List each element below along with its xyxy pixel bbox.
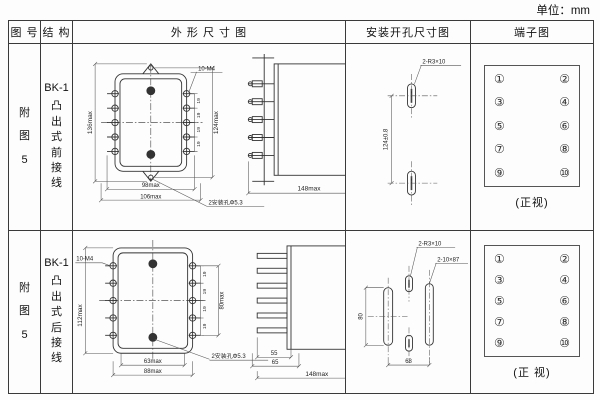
terminal-number: ⑩: [559, 167, 570, 179]
mounting-hole-spec-label: 2安装孔Φ5.3: [211, 352, 246, 360]
figure-number: 附图5: [17, 277, 32, 346]
unit-label: 单位：mm: [536, 2, 590, 18]
pitch-label: 19: [196, 127, 202, 133]
outline-drawing-front-wiring: 136max 124max 10-M4 19 19 19 19 98max 10…: [73, 44, 345, 230]
terminal-number: ④: [559, 96, 570, 108]
terminal-number: ②: [559, 253, 570, 265]
relay-front-view: [99, 239, 206, 360]
terminal-row: ①②: [494, 253, 570, 265]
dim-blade-55: 55: [271, 351, 278, 357]
structure-label: 凸出式前接线: [49, 99, 64, 191]
dim-height-overall: 112max: [77, 303, 84, 326]
outline-cell-row1: 136max 124max 10-M4 19 19 19 19 98max 10…: [73, 44, 346, 231]
mounting-cell-row1: 124±0.8 2-R3×10: [346, 44, 471, 231]
structure-cell-row2: BK-1 凸出式后接线: [41, 231, 73, 393]
slot-spec-label: 2-R3×10: [422, 60, 446, 66]
spec-table: 图 号 结 构 外 形 尺 寸 图 安装开孔尺寸图 端子图 附图5 BK-1 凸…: [8, 20, 594, 394]
datasheet-page: 单位：mm 图 号 结 构 外 形 尺 寸 图 安装开孔尺寸图 端子图 附图5 …: [0, 0, 600, 400]
terminal-row: ③④: [494, 274, 570, 286]
terminal-number: ③: [494, 96, 505, 108]
figure-no-cell-row1: 附图5: [9, 44, 41, 231]
terminal-number: ⑥: [559, 295, 570, 307]
terminal-box: ①② ③④ ⑤⑥ ⑦⑧ ⑨⑩: [484, 65, 580, 187]
outline-cell-row2: 10-M4 112max 19 19 19 19 80max 63max 88m…: [73, 231, 346, 393]
terminal-number: ⑧: [559, 143, 570, 155]
header-structure-label: 结 构: [42, 24, 70, 40]
mounting-hole-spec-label: 2安装孔Φ5.3: [209, 199, 244, 207]
terminal-row: ⑨⑩: [494, 337, 570, 349]
dim-width-overall: 88max: [144, 369, 162, 375]
terminal-box: ①② ③④ ⑤⑥ ⑦⑧ ⑨⑩: [484, 245, 580, 357]
terminal-number: ④: [559, 274, 570, 286]
terminal-row: ⑨⑩: [494, 167, 570, 179]
slot-spec-label: 2-R3×10: [418, 241, 442, 247]
terminal-row: ⑤⑥: [494, 295, 570, 307]
model-label: BK-1: [44, 82, 68, 94]
figure-number: 附图5: [17, 102, 32, 171]
dim-depth: 148max: [297, 186, 321, 193]
relay-side-view: [248, 54, 345, 185]
dim-slot-span: 80: [358, 312, 364, 319]
terminal-number: ⑦: [494, 143, 505, 155]
pitch-label: 19: [202, 306, 208, 312]
structure-label: 凸出式后接线: [49, 274, 64, 366]
header-figure-no-label: 图 号: [10, 24, 38, 40]
terminal-cell-row1: ①② ③④ ⑤⑥ ⑦⑧ ⑨⑩ (正视): [471, 44, 593, 231]
dimension-lines: [388, 65, 461, 205]
dim-height-holes: 124max: [213, 110, 220, 134]
terminal-number: ⑤: [494, 295, 505, 307]
dim-hole-spacing: 124±0.8: [384, 128, 390, 150]
dimension-lines: [364, 247, 468, 367]
terminal-row: ③④: [494, 96, 570, 108]
terminal-number: ⑨: [494, 167, 505, 179]
mounting-holes-drawing: 124±0.8 2-R3×10: [346, 44, 470, 230]
header-outline: 外 形 尺 寸 图: [73, 21, 346, 44]
terminal-row: ①②: [494, 73, 570, 85]
terminal-row: ⑤⑥: [494, 120, 570, 132]
pitch-label: 19: [202, 323, 208, 329]
terminal-number: ⑩: [559, 337, 570, 349]
structure-cell-row1: BK-1 凸出式前接线: [41, 44, 73, 231]
relay-front-view: [101, 64, 202, 181]
pitch-label: 19: [196, 112, 202, 118]
dim-terminal-span: 80max: [219, 291, 225, 309]
header-outline-label: 外 形 尺 寸 图: [171, 24, 247, 40]
terminal-number: ①: [494, 73, 505, 85]
mounting-slots: [384, 275, 434, 350]
mounting-holes-drawing: 80 68 2-R3×10 2-10×87: [346, 232, 470, 393]
dim-height-overall: 136max: [87, 110, 94, 134]
terminal-row: ⑦⑧: [494, 143, 570, 155]
terminal-number: ⑨: [494, 337, 505, 349]
dim-width-inner: 63max: [144, 359, 162, 365]
view-label: (正 视): [513, 364, 550, 380]
outline-drawing-rear-wiring: 10-M4 112max 19 19 19 19 80max 63max 88m…: [73, 232, 345, 393]
terminal-number: ①: [494, 253, 505, 265]
view-label: (正视): [515, 194, 548, 210]
header-terminal: 端子图: [471, 21, 593, 44]
terminal-number: ⑥: [559, 120, 570, 132]
slot-spec-label-2: 2-10×87: [437, 257, 459, 263]
header-mounting: 安装开孔尺寸图: [346, 21, 471, 44]
dim-depth: 148max: [305, 371, 329, 378]
terminal-row: ⑦⑧: [494, 316, 570, 328]
screw-spec-label: 10-M4: [76, 256, 94, 262]
dim-slot-spacing: 68: [405, 359, 412, 365]
header-terminal-label: 端子图: [514, 24, 550, 40]
pitch-label: 19: [202, 288, 208, 294]
header-mounting-label: 安装开孔尺寸图: [366, 24, 450, 40]
relay-side-view: [257, 245, 345, 348]
pitch-label: 19: [196, 141, 202, 147]
pitch-label: 19: [196, 98, 202, 104]
terminal-cell-row2: ①② ③④ ⑤⑥ ⑦⑧ ⑨⑩ (正 视): [471, 231, 593, 393]
terminal-number: ②: [559, 73, 570, 85]
terminal-number: ⑦: [494, 316, 505, 328]
terminal-number: ⑤: [494, 120, 505, 132]
terminal-number: ⑧: [559, 316, 570, 328]
header-structure: 结 构: [41, 21, 73, 44]
dim-blade-65: 65: [272, 360, 279, 366]
figure-no-cell-row2: 附图5: [9, 231, 41, 393]
mounting-cell-row2: 80 68 2-R3×10 2-10×87: [346, 231, 471, 393]
header-figure-no: 图 号: [9, 21, 41, 44]
dim-width-overall: 106max: [140, 195, 161, 201]
terminal-number: ③: [494, 274, 505, 286]
model-label: BK-1: [44, 257, 68, 269]
screw-spec-label: 10-M4: [198, 66, 216, 72]
dim-width-inner: 98max: [142, 183, 160, 189]
pitch-label: 19: [202, 271, 208, 277]
